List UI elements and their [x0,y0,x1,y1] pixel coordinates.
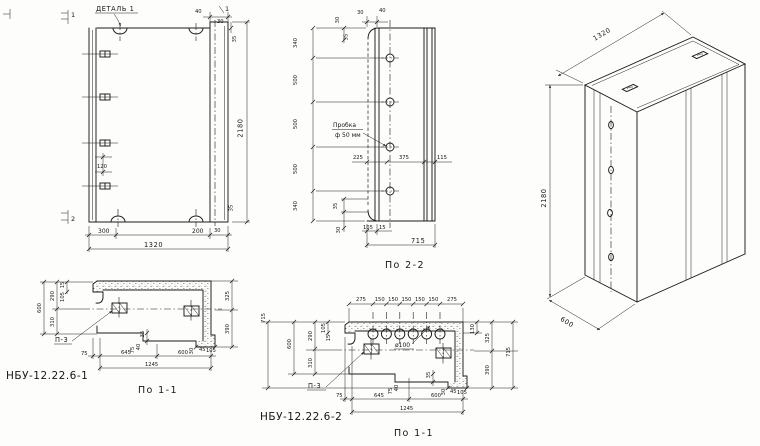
drawing-sheet: 120 2180 40 30 35 300 200 1320 35 30 ДЕТ… [0,0,760,446]
dim-p2-150e: 150 [428,297,438,303]
dim-p2-105: 105 [321,323,327,333]
dim-depth715: 715 [411,237,425,245]
dim-iso-width: 1320 [592,26,613,43]
plug-callout: Пробка ф 50 мм [332,122,386,146]
plan-2-view: 275 150 150 150 150 150 275 715 600 290 … [260,297,518,439]
blueprint-svg: 120 2180 40 30 35 300 200 1320 35 30 ДЕТ… [0,0,760,446]
dim-corner35: 35 [229,205,235,212]
dim-p1-310: 310 [50,317,56,327]
dim-p1-290: 290 [50,291,56,301]
dim-p1-600: 600 [37,303,43,313]
plan1-body [83,281,222,347]
dim-chain-340a: 340 [293,38,299,48]
dim-p1-step40: 40 [136,344,142,351]
plan2-dimensions: 275 150 150 150 150 150 275 715 600 290 … [261,297,518,415]
dim-p2-150b: 150 [388,297,398,303]
plan2-part-mark: НБУ-12.22.6-2 [260,411,342,423]
dim-p2-150a: 150 [375,297,385,303]
dim-p2-130: 130 [470,324,476,334]
dim-115: 115 [437,155,447,161]
plan1-caption: По 1-1 [138,385,178,396]
elevation-dimensions: 2180 40 30 35 300 200 1320 35 30 [85,9,250,252]
dim-p2-foot45: 45 [450,389,457,395]
dim-p2-15: 15 [326,335,332,342]
dim-sec-top30: 30 [357,10,364,16]
section-mark-1-right: 1 [225,5,229,13]
dim-edge35: 35 [344,34,350,41]
dim-15: 15 [379,225,386,231]
dim-top35: 35 [232,36,238,43]
dim-foot35: 35 [333,203,339,210]
dim-p2-390: 390 [485,365,491,375]
dim-p1-390: 390 [225,324,231,334]
dim-p1-foot45: 45 [199,347,206,353]
dim-iso-depth: 600 [559,315,575,329]
plan-1-view: 600 290 310 15 105 325 390 75 645 600 12… [6,279,238,396]
dim-foot30: 30 [336,227,342,234]
dim-edge30: 30 [335,17,341,24]
dim-p2-275a: 275 [356,297,366,303]
detail-callout: ДЕТАЛЬ 1 [95,5,138,26]
section-2-2-view: 340 500 500 500 340 30 40 30 35 225 375 … [293,8,452,271]
dim-bottom200: 200 [192,228,204,235]
section-mark-2: 2 [71,215,75,223]
dim-225: 225 [353,155,363,161]
section-dimensions: 340 500 500 500 340 30 40 30 35 225 375 … [293,8,452,248]
dim-p2-foot30: 30 [441,389,447,396]
dim-embed-gap: 120 [97,164,107,170]
dim-p2-150c: 150 [402,297,412,303]
detail-1-label: ДЕТАЛЬ 1 [96,5,134,13]
plug-note-line1: Пробка [333,122,356,129]
iso-box-lines [585,37,745,302]
dim-p1-b600: 600 [178,350,188,356]
dim-corner30: 30 [214,228,221,234]
section-mark-1-left: 1 [71,11,75,19]
dim-p1-1245: 1245 [145,362,158,368]
dim-p2-right715: 715 [506,347,512,357]
dim-p2-290: 290 [308,331,314,341]
dim-p2-foot105: 105 [457,390,467,396]
dim-375: 375 [399,155,409,161]
elevation-view: 120 2180 40 30 35 300 200 1320 35 30 ДЕТ… [3,5,250,252]
dim-top30: 30 [217,19,224,25]
dim-p1-step35: 35 [140,331,146,338]
elevation-embeds: 120 [82,51,118,189]
dim-p2-150d: 150 [415,297,425,303]
plan2-caption: По 1-1 [394,428,434,439]
dim-p1-15: 15 [60,282,66,289]
dim-p1-105: 105 [60,292,66,302]
dim-p2-1245: 1245 [400,406,413,412]
plan2-p3-label: П-3 [308,382,321,390]
dim-p2-325: 325 [485,333,491,343]
dim-iso-height: 2180 [540,188,548,207]
dim-p1-75: 75 [81,351,88,357]
iso-dimensions: 1320 2180 600 [540,11,691,330]
dim-p2-step40: 40 [394,385,400,392]
isometric-view: 1320 2180 600 [540,11,745,330]
plan1-part-mark: НБУ-12.22.6-1 [6,370,88,382]
dim-p1-foot30: 30 [189,348,195,355]
section-marks: 1 1 2 [3,5,229,224]
dim-105: 105 [363,225,373,231]
dim-sec-top40: 40 [379,8,386,14]
dim-p1-foot105: 105 [206,348,216,354]
dim-chain-500c: 500 [293,164,299,174]
dim-height: 2180 [237,118,245,137]
dim-p2-310: 310 [308,358,314,368]
dim-p2-step35: 35 [426,372,432,379]
section-body-lines [367,20,435,228]
plan2-hole-callout: ø100 [395,342,410,349]
dim-p2-left715: 715 [261,313,267,323]
dim-bottom-width: 1320 [144,241,163,249]
dim-p2-left600: 600 [287,339,293,349]
dim-p2-645: 645 [374,393,384,399]
dim-chain-340b: 340 [293,201,299,211]
plan1-p3-label: П-3 [55,336,68,344]
dim-p2-275b: 275 [447,297,457,303]
dim-p1-325: 325 [225,291,231,301]
plug-note-line2: ф 50 мм [335,132,361,139]
dim-bottom300: 300 [98,228,110,235]
dim-p2-b600: 600 [431,393,441,399]
dim-top40: 40 [195,9,202,15]
dim-chain-500a: 500 [293,75,299,85]
section-caption: По 2-2 [385,260,425,271]
plan1-callouts: П-3 НБУ-12.22.6-1 По 1-1 [6,311,178,396]
plan2-body [335,312,474,388]
dim-chain-500b: 500 [293,119,299,129]
dim-p2-75: 75 [336,393,343,399]
